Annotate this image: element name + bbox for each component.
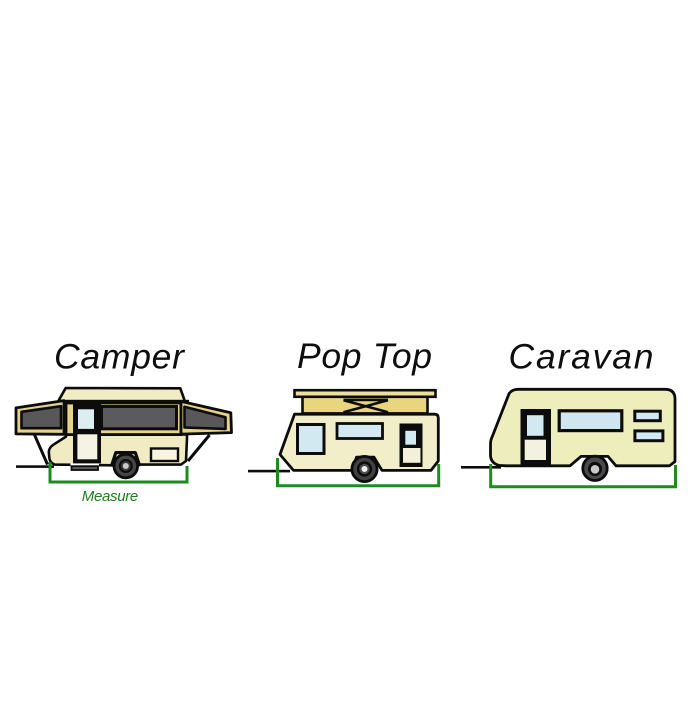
- svg-text:Pop Top: Pop Top: [297, 336, 432, 376]
- svg-text:Camper: Camper: [54, 337, 186, 377]
- svg-text:Caravan: Caravan: [509, 337, 654, 377]
- svg-text:Measure: Measure: [82, 488, 139, 505]
